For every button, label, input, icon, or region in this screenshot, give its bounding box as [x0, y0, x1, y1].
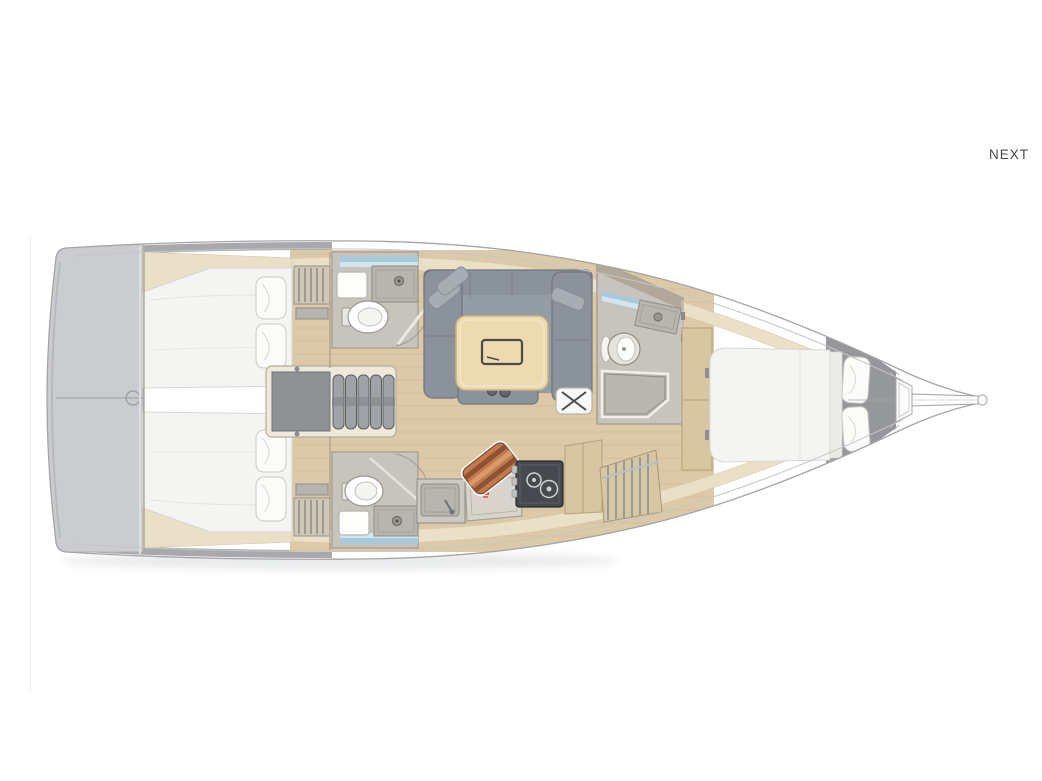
pillow — [256, 277, 286, 319]
counter-lid — [337, 272, 367, 298]
steps — [332, 375, 395, 429]
stove-knob — [512, 466, 517, 473]
vent — [296, 484, 328, 495]
salon-table — [456, 316, 548, 390]
yacht-floorplan — [0, 0, 1042, 781]
stove — [512, 461, 563, 507]
handle — [295, 367, 300, 372]
aft-head-port — [332, 252, 430, 348]
anchor-locker — [896, 378, 912, 422]
stove-knob — [512, 478, 517, 485]
aft-head-starboard — [332, 452, 430, 548]
pillow — [256, 477, 286, 521]
counter-lid — [339, 511, 369, 535]
companionway — [266, 366, 396, 437]
transom-swim-platform — [47, 244, 143, 554]
handle — [295, 432, 300, 437]
island-bed — [710, 348, 830, 462]
wardrobe — [682, 328, 712, 470]
stove-knob — [512, 490, 517, 497]
landing — [272, 372, 330, 431]
mattress-head — [830, 352, 842, 458]
carousel-slide: NEXT — [0, 0, 1042, 781]
vent — [296, 308, 328, 319]
folding-stool — [556, 388, 592, 414]
pillow — [841, 406, 870, 452]
bowsprit-tip — [978, 395, 987, 405]
pillow — [256, 324, 286, 368]
toilet — [601, 333, 640, 365]
window-strip — [340, 538, 418, 544]
window-strip — [340, 256, 418, 262]
